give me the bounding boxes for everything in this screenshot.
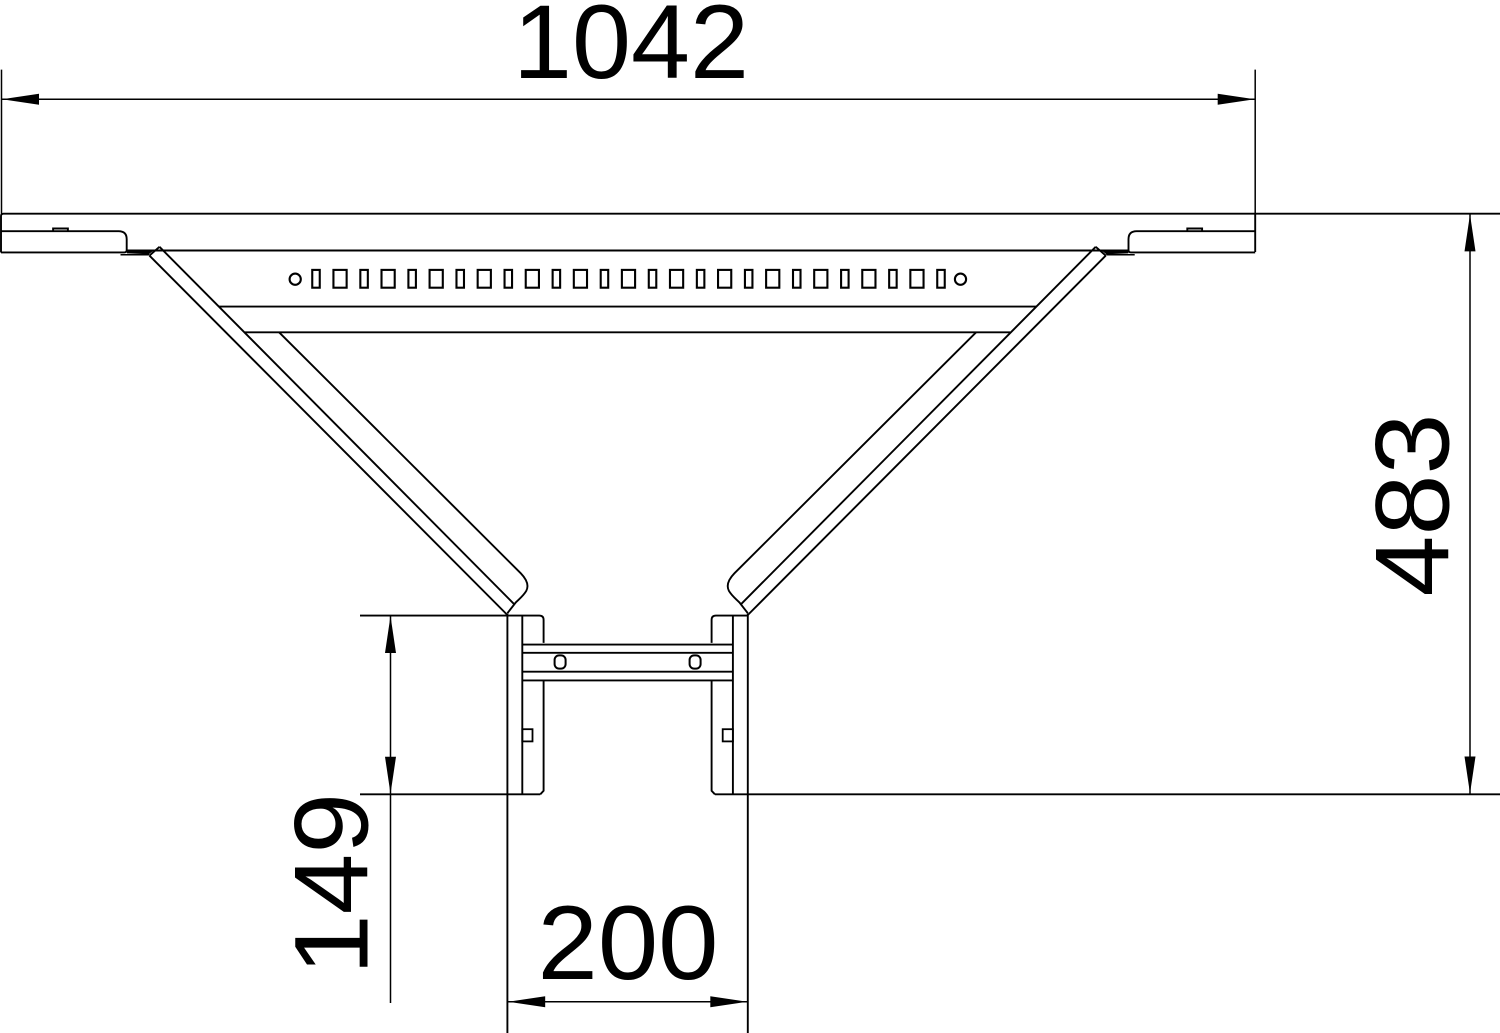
svg-text:200: 200 — [538, 885, 719, 1002]
svg-text:149: 149 — [274, 793, 391, 975]
svg-text:1042: 1042 — [513, 0, 749, 101]
svg-text:483: 483 — [1355, 414, 1472, 597]
